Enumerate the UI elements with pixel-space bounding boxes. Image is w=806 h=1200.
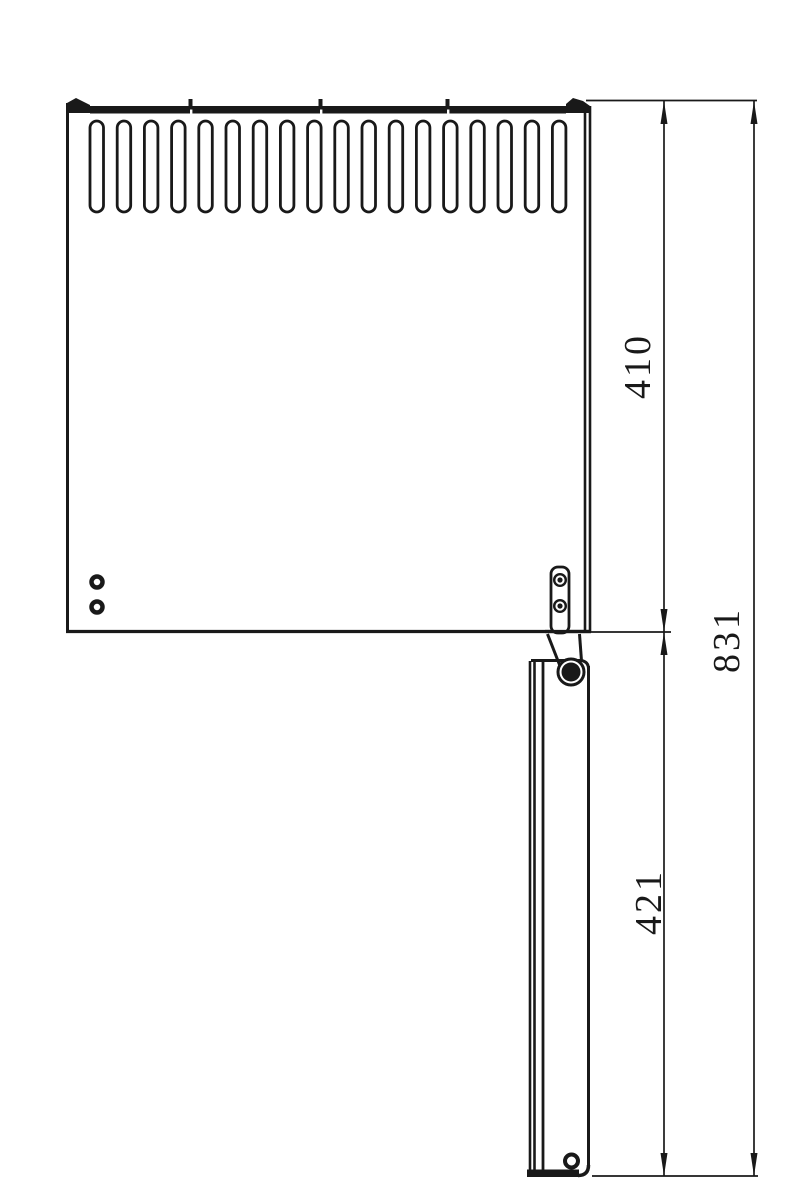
dimension-label-831: 831 [706, 607, 748, 673]
panel-top-bar [90, 99, 566, 114]
vent-slot [308, 121, 322, 212]
vent-slot [498, 121, 512, 212]
arrowhead-down [751, 1153, 758, 1176]
top-bar-tick [446, 99, 450, 106]
dimension-831: 831 [706, 101, 758, 1176]
main-panel [66, 98, 591, 633]
vent-slot [444, 121, 458, 212]
vent-slot [172, 121, 186, 212]
dimension-421: 421 [628, 632, 670, 1176]
vent-slot [471, 121, 485, 212]
vent-slots [90, 121, 566, 212]
vent-slot [335, 121, 349, 212]
dimension-410: 410 [617, 101, 668, 632]
dimension-label-410: 410 [617, 333, 659, 399]
hinge-bracket-hole-center [557, 603, 562, 608]
vent-slot [90, 121, 104, 212]
dimension-label-421: 421 [628, 869, 670, 935]
flap-panel [527, 660, 589, 1177]
vent-slot [144, 121, 158, 212]
flap-bottom-corner [578, 1165, 589, 1176]
panel-hole [92, 577, 103, 588]
top-bar-tick [189, 99, 193, 106]
vent-slot [253, 121, 267, 212]
hinge-pivot-pin [562, 663, 581, 682]
hinge-arm-right [580, 634, 582, 661]
top-bar-tick [319, 99, 323, 106]
dimensions: 410 421 831 [586, 101, 758, 1177]
vent-slot [416, 121, 430, 212]
vent-slot [525, 121, 539, 212]
vent-slot [199, 121, 213, 212]
panel-top-left-tab [66, 98, 90, 113]
panel-hole [92, 602, 103, 613]
vent-slot [226, 121, 240, 212]
flap-bottom-bar [527, 1170, 579, 1178]
arrowhead-up [661, 101, 668, 124]
arrowhead-down [661, 1153, 668, 1176]
drawing-page: 410 421 831 [0, 0, 806, 1200]
vent-slot [389, 121, 403, 212]
vent-slot [362, 121, 376, 212]
arrowhead-up [661, 632, 668, 655]
arrowhead-up [751, 101, 758, 124]
hinge-bracket-hole-center [557, 577, 562, 582]
cad-drawing: 410 421 831 [0, 0, 806, 1200]
vent-slot [552, 121, 566, 212]
vent-slot [117, 121, 131, 212]
arrowhead-down [661, 609, 668, 632]
vent-slot [280, 121, 294, 212]
flap-hole [565, 1155, 578, 1168]
